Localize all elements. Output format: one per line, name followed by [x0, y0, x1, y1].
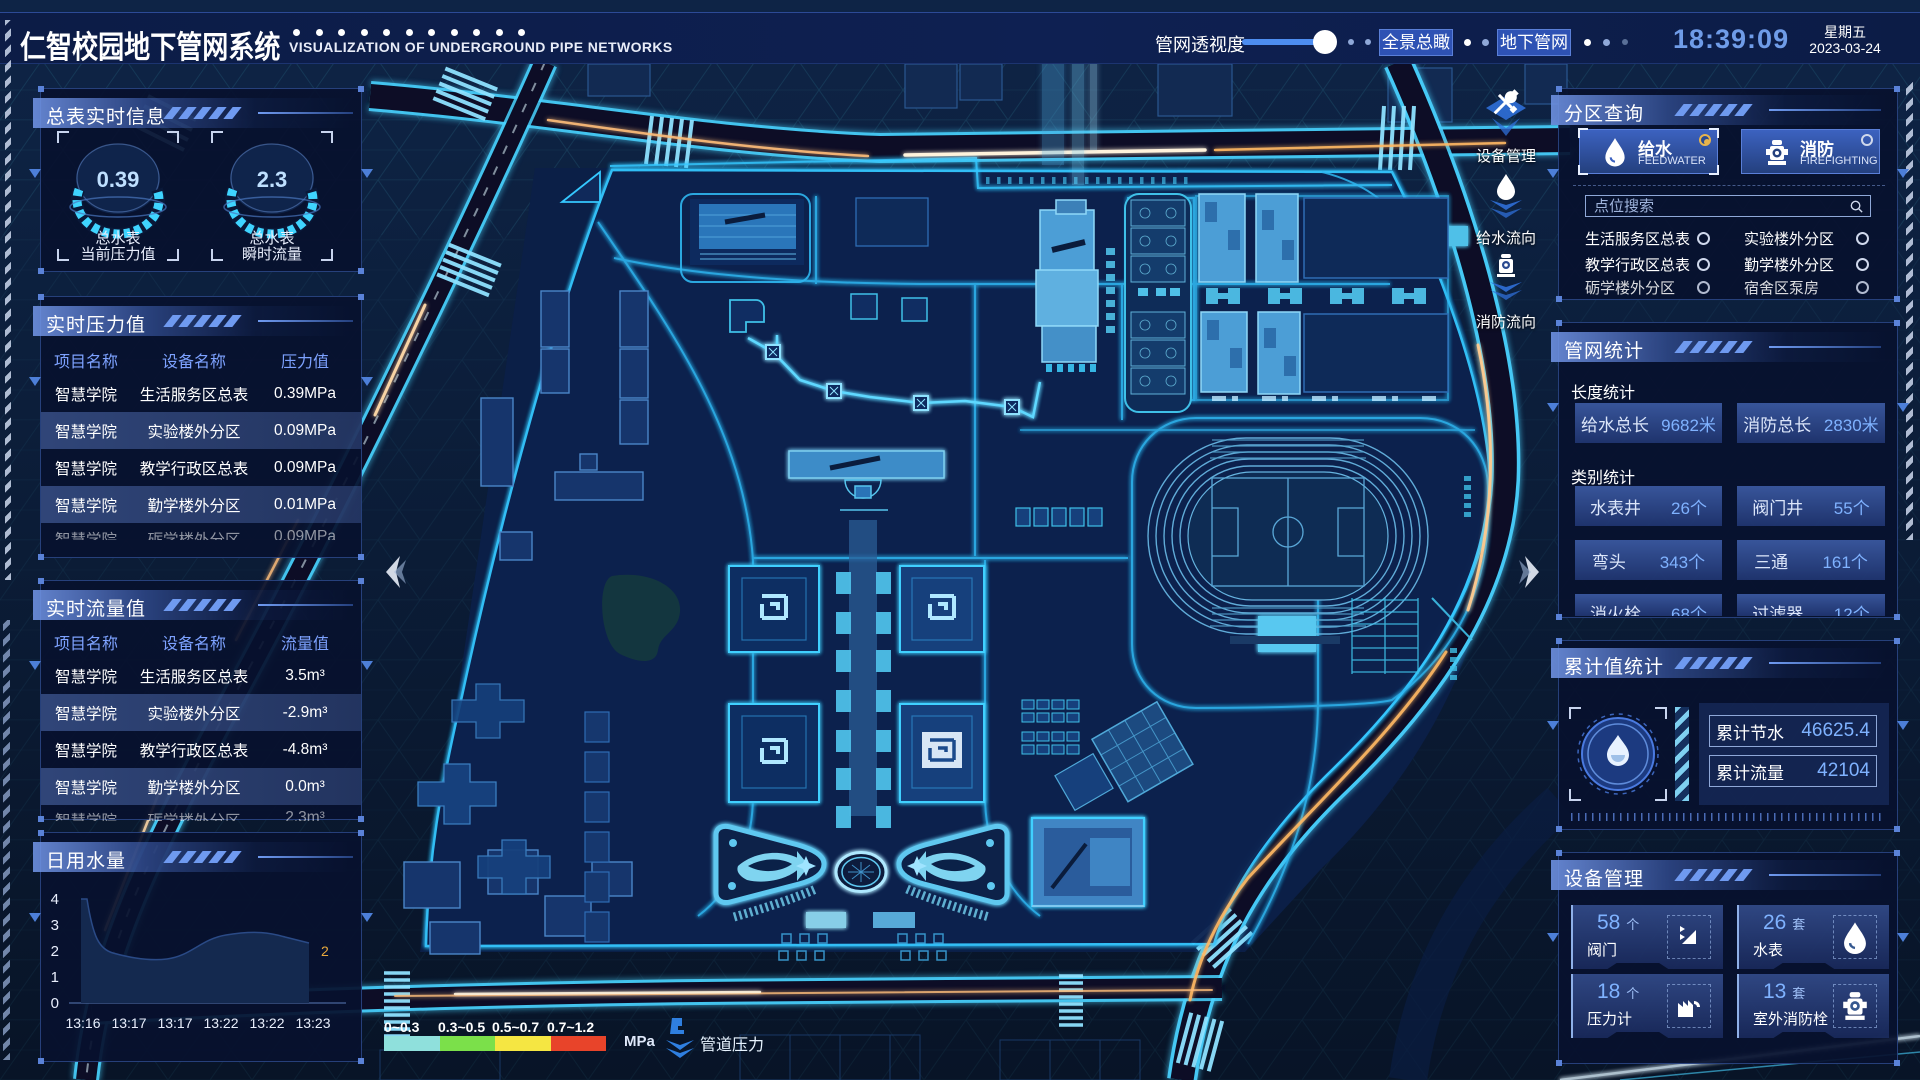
svg-text:2.3: 2.3	[257, 167, 288, 192]
svg-text:13:17: 13:17	[111, 1015, 146, 1031]
svg-text:0: 0	[51, 995, 59, 1012]
svg-text:13:23: 13:23	[295, 1015, 330, 1031]
svg-text:3: 3	[51, 917, 59, 934]
svg-text:4: 4	[51, 891, 59, 908]
svg-text:0.39: 0.39	[97, 167, 140, 192]
svg-text:1: 1	[51, 969, 59, 986]
svg-text:13:17: 13:17	[157, 1015, 192, 1031]
svg-text:13:16: 13:16	[65, 1015, 100, 1031]
svg-text:13:22: 13:22	[249, 1015, 284, 1031]
svg-text:2: 2	[51, 943, 59, 960]
svg-text:13:22: 13:22	[203, 1015, 238, 1031]
svg-text:2: 2	[321, 943, 329, 959]
